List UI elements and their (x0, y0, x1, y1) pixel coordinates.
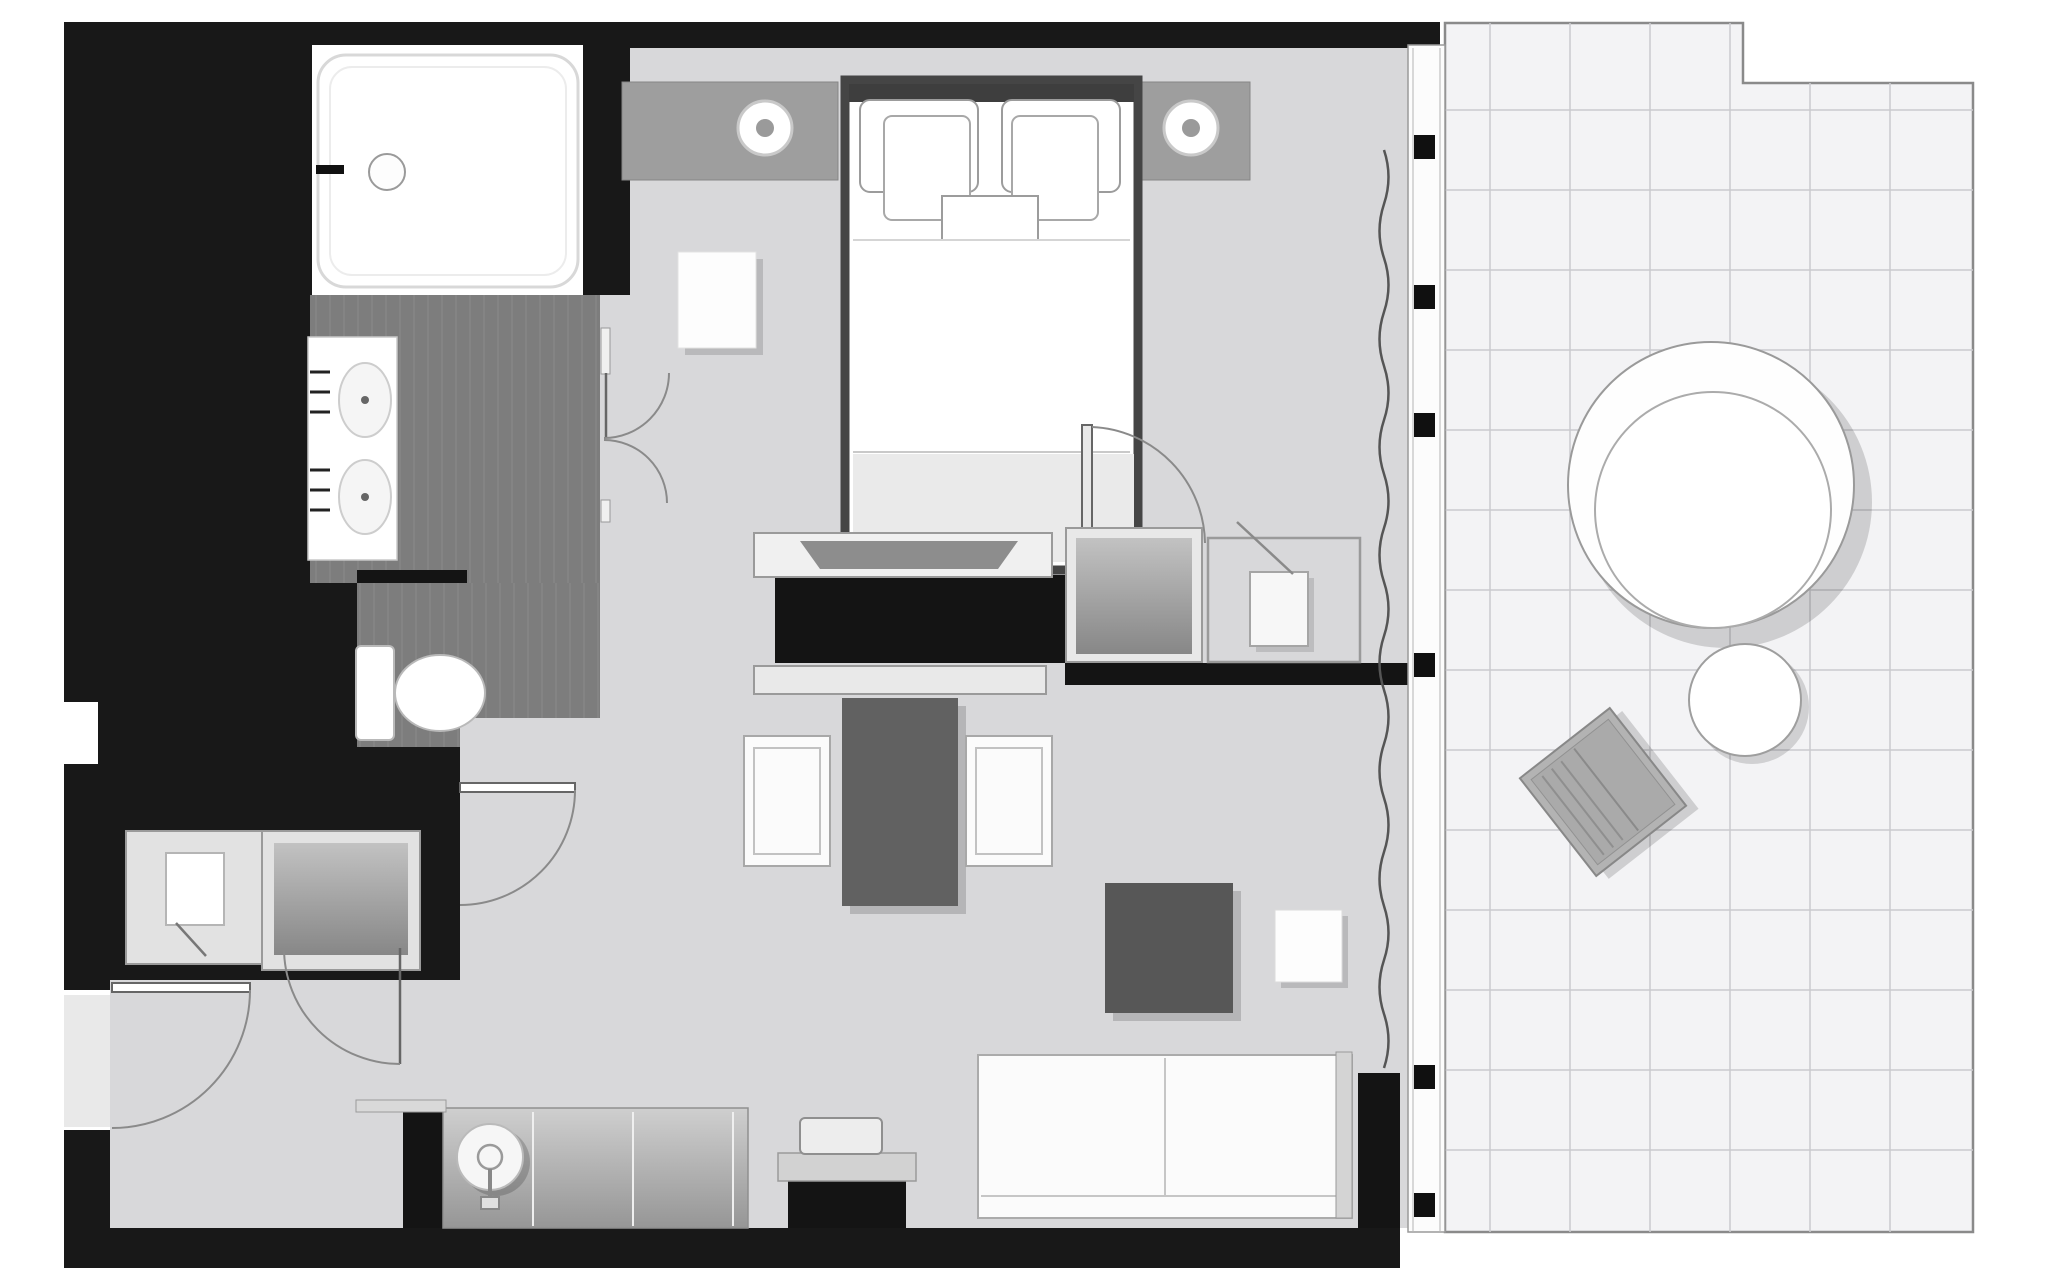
wall-right-stub (1358, 1073, 1400, 1228)
window-mullion-square (1414, 1193, 1435, 1217)
exterior-notch (64, 702, 98, 764)
ottoman (1105, 883, 1233, 1013)
window-mullion-square (1414, 1065, 1435, 1089)
wall-left-lower (64, 1130, 110, 1268)
wall-top (110, 22, 1440, 48)
hall-door-leaf (460, 783, 575, 792)
wall-mid-right (1065, 663, 1412, 685)
lamp-left-core (756, 119, 774, 137)
lamp-right-core (1182, 119, 1200, 137)
window-mullion-square (1414, 413, 1435, 437)
entry-door-leaf (112, 983, 250, 992)
luggage-square (1250, 572, 1308, 646)
wall-kitchen-pedestal (403, 1108, 443, 1228)
wall-bath-half (357, 570, 467, 583)
bathtub-faucet (369, 154, 405, 190)
wall-tv (775, 575, 1065, 663)
door-jamb-top (601, 328, 610, 374)
vanity-sink-drain (361, 396, 369, 404)
vanity-sink-drain (361, 493, 369, 501)
console-living (754, 666, 1046, 694)
bench-tray (800, 1118, 882, 1154)
nightstand-left (622, 82, 838, 180)
window-mullion-square (1414, 653, 1435, 677)
wall-bottom (110, 1228, 1400, 1268)
toilet-tank (356, 646, 394, 740)
round-daybed-cushion (1595, 392, 1831, 628)
kitchen-shelf (356, 1100, 446, 1112)
bed-runner (942, 196, 1038, 240)
chair-left (744, 736, 830, 866)
stool (678, 252, 756, 348)
entry-door-threshold (64, 995, 110, 1127)
bathtub-spout (316, 165, 344, 174)
coffee-table (842, 698, 958, 906)
window-mullion-square (1414, 135, 1435, 159)
kitchen-faucet-base (481, 1197, 499, 1209)
safe (166, 853, 224, 925)
console-tray (800, 541, 1018, 569)
window-strip (1408, 45, 1445, 1232)
window-mullion-square (1414, 285, 1435, 309)
side-table (1275, 910, 1342, 982)
bench-top (778, 1153, 916, 1181)
terrace-side-table (1689, 644, 1801, 756)
closet-wardrobe-fill (274, 843, 408, 955)
floor-plan-canvas (0, 0, 2048, 1284)
door-jamb-bottom (601, 500, 610, 522)
wall-bench-pedestal (788, 1180, 906, 1228)
chair-right (966, 736, 1052, 866)
sofa-armrest (1336, 1052, 1352, 1218)
bathtub (318, 55, 578, 287)
toilet-bowl (395, 655, 485, 731)
wardrobe-unit-fill (1076, 538, 1192, 654)
floor-plan-svg (0, 0, 2048, 1284)
